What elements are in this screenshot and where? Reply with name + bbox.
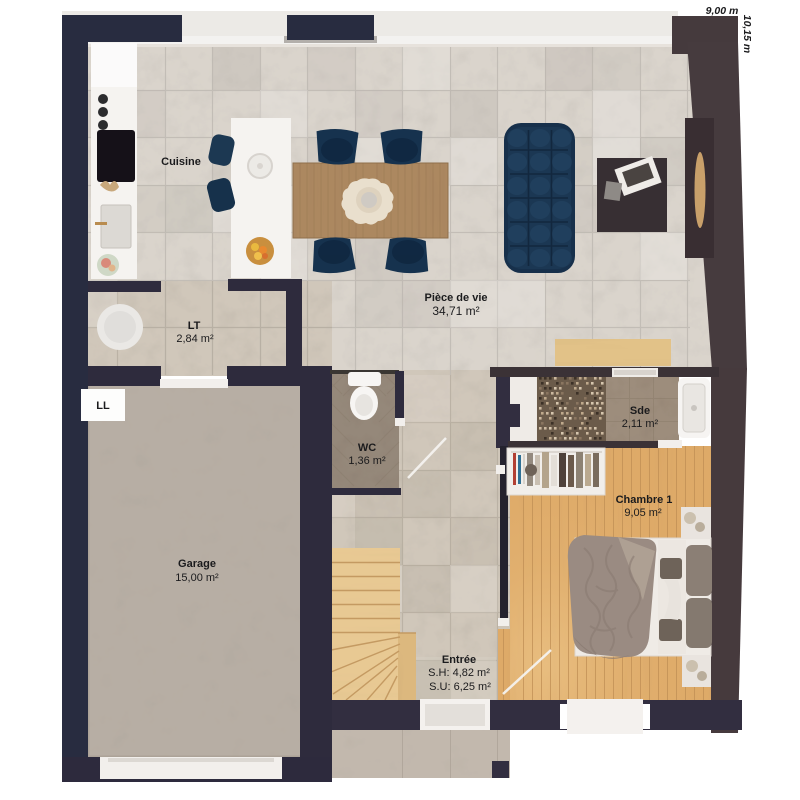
svg-text:WC: WC — [358, 442, 376, 454]
svg-text:9,05 m²: 9,05 m² — [624, 507, 662, 519]
svg-text:Chambre 1: Chambre 1 — [616, 494, 673, 506]
svg-text:Sde: Sde — [630, 405, 650, 417]
svg-text:S.U: 6,25 m²: S.U: 6,25 m² — [429, 681, 491, 693]
svg-text:1,36 m²: 1,36 m² — [348, 455, 386, 467]
svg-text:Pièce de vie: Pièce de vie — [425, 292, 488, 304]
svg-text:34,71 m²: 34,71 m² — [432, 304, 479, 318]
svg-text:S.H: 4,82 m²: S.H: 4,82 m² — [428, 667, 490, 679]
svg-text:LT: LT — [188, 320, 201, 332]
svg-text:9,00 m: 9,00 m — [706, 5, 739, 17]
svg-text:Entrée: Entrée — [442, 654, 476, 666]
svg-text:LL: LL — [96, 400, 110, 412]
svg-text:Garage: Garage — [178, 558, 216, 570]
svg-text:15,00 m²: 15,00 m² — [175, 572, 219, 584]
svg-text:2,84 m²: 2,84 m² — [176, 333, 214, 345]
svg-text:2,11 m²: 2,11 m² — [622, 418, 659, 430]
svg-text:10,15 m: 10,15 m — [741, 15, 753, 54]
svg-text:Cuisine: Cuisine — [161, 156, 201, 168]
